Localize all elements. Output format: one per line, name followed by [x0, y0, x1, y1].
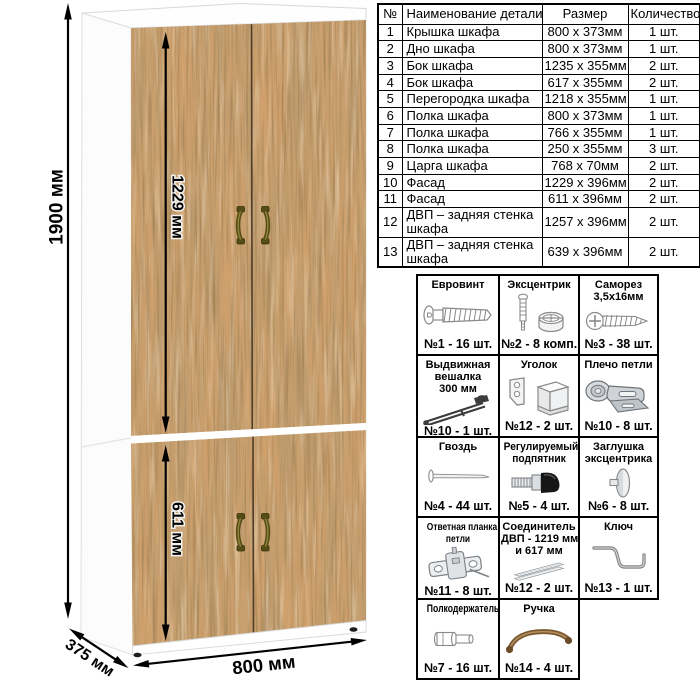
svg-text:1900 мм: 1900 мм — [47, 169, 68, 245]
svg-text:1229 мм: 1229 мм — [168, 175, 185, 239]
svg-text:611 мм: 611 мм — [168, 502, 185, 556]
